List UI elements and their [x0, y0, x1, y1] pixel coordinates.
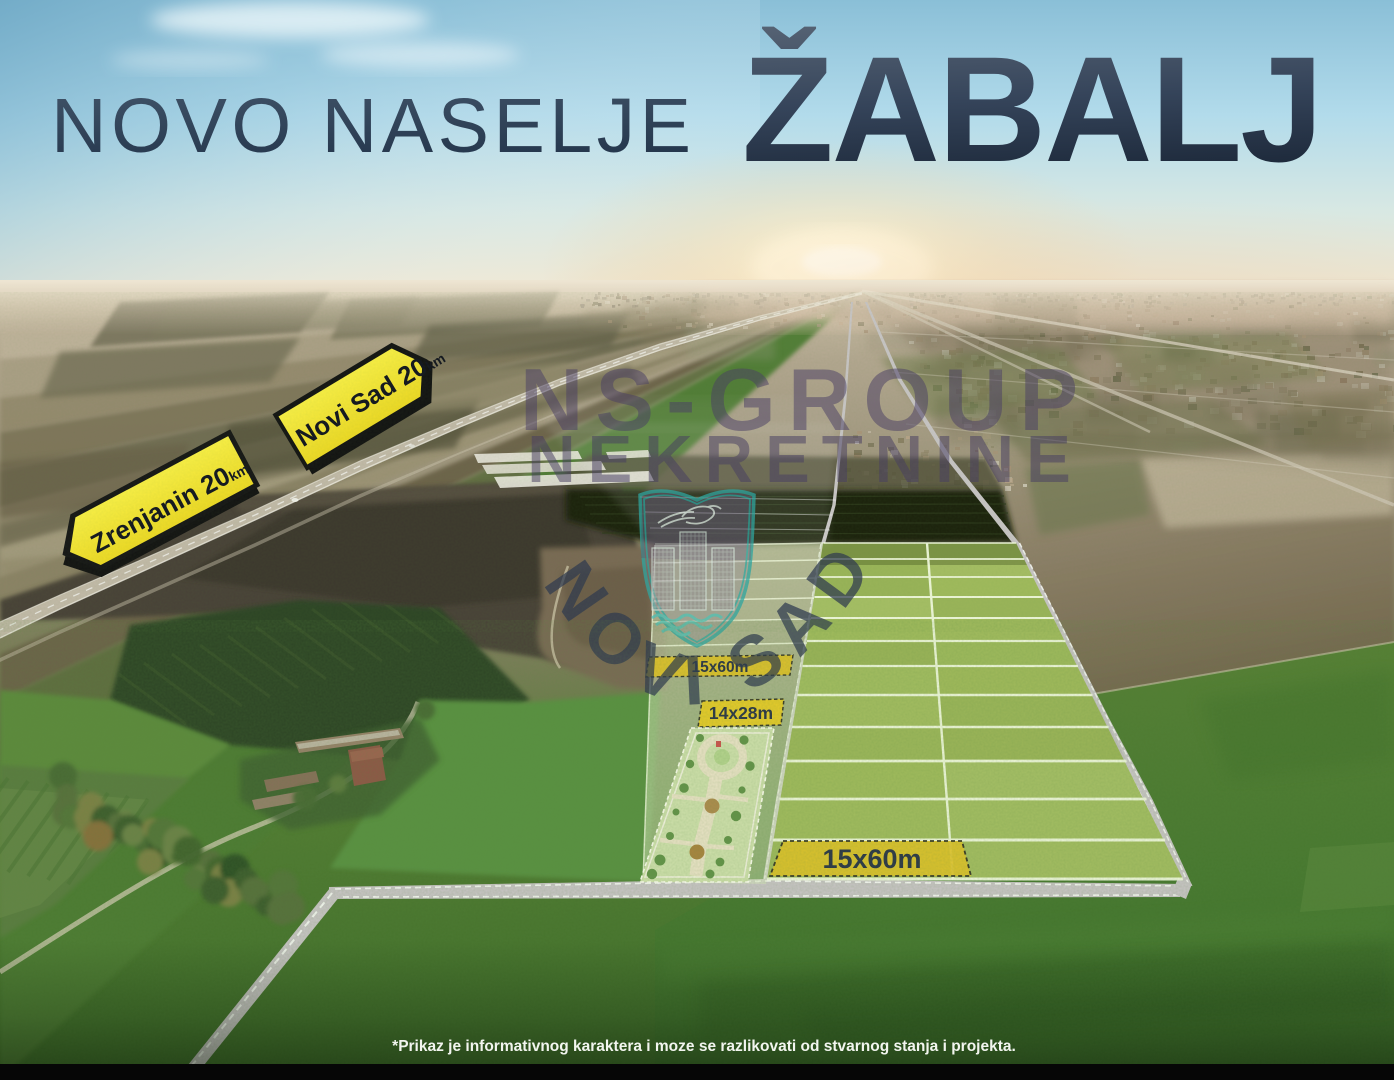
svg-text:*Prikaz je informativnog karak: *Prikaz je informativnog karaktera i moz…	[392, 1038, 1016, 1055]
svg-text:NOVO NASELJE: NOVO NASELJE	[51, 83, 696, 169]
svg-text:ŽABALJ: ŽABALJ	[742, 25, 1322, 193]
